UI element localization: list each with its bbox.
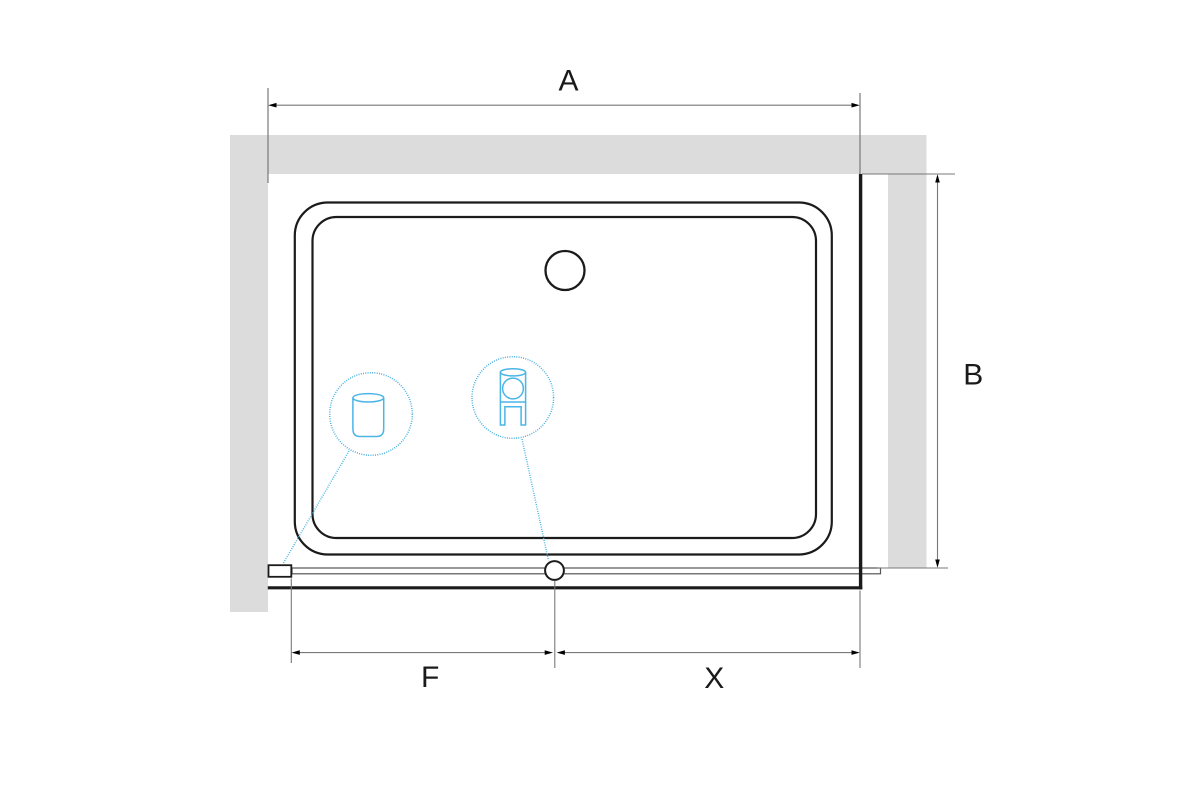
svg-text:X: X [704, 662, 724, 695]
svg-text:B: B [963, 359, 983, 392]
svg-text:A: A [558, 64, 578, 97]
svg-text:F: F [421, 661, 439, 694]
